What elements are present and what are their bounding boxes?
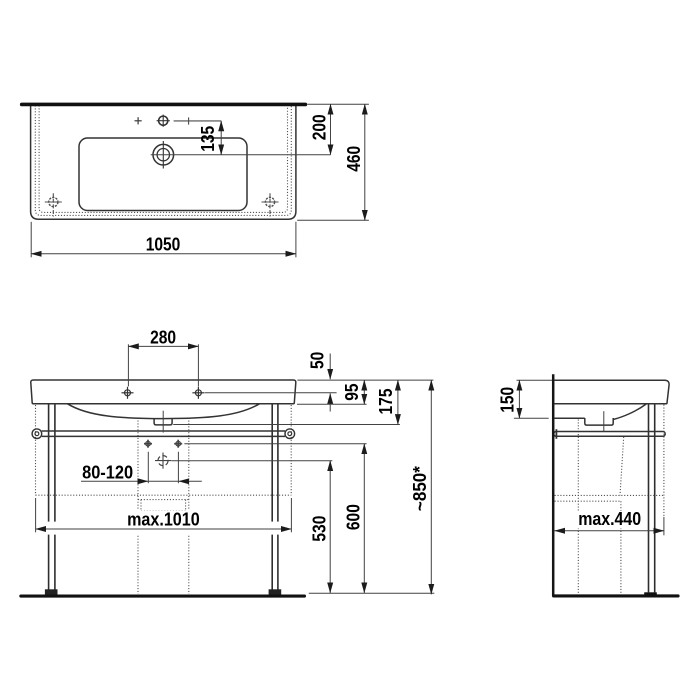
svg-text:200: 200 <box>310 114 330 140</box>
svg-text:135: 135 <box>198 126 218 152</box>
svg-text:530: 530 <box>309 516 329 542</box>
svg-text:50: 50 <box>307 352 327 369</box>
svg-text:150: 150 <box>498 387 518 413</box>
svg-text:max.440: max.440 <box>578 509 641 529</box>
svg-text:1050: 1050 <box>146 235 181 255</box>
svg-text:460: 460 <box>344 146 364 172</box>
svg-text:600: 600 <box>344 504 364 530</box>
svg-text:max.1010: max.1010 <box>127 510 200 530</box>
svg-text:175: 175 <box>376 389 396 415</box>
svg-text:80-120: 80-120 <box>82 462 133 482</box>
svg-text:95: 95 <box>342 383 362 400</box>
svg-text:~850*: ~850* <box>410 466 430 511</box>
svg-text:280: 280 <box>150 327 176 347</box>
